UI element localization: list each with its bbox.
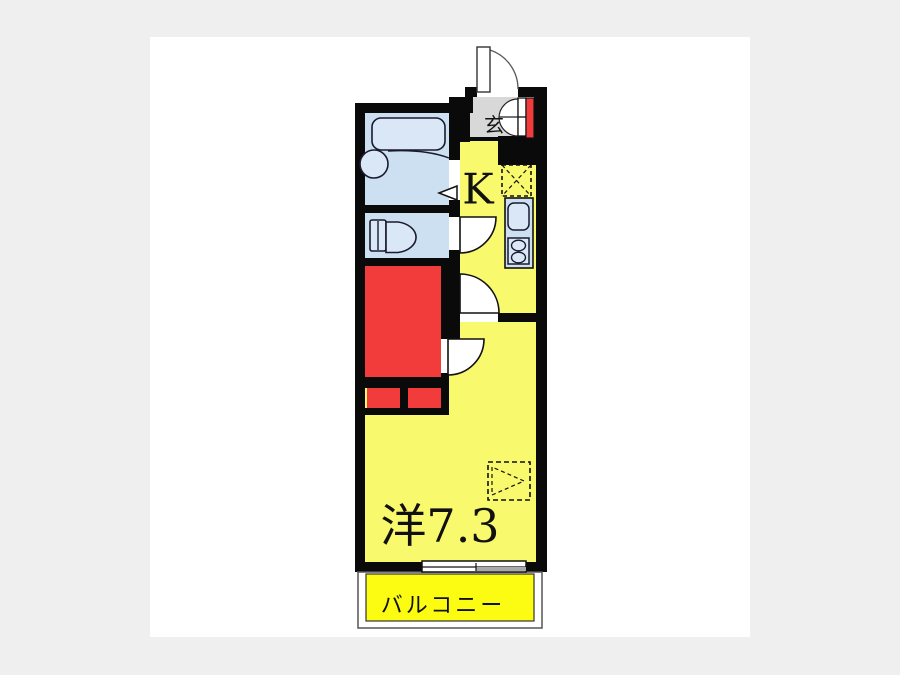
floorplan-canvas: 玄 K 洋7.3 バルコニー bbox=[150, 37, 750, 637]
entry-door-swing bbox=[490, 50, 518, 89]
screenshot-root: 玄 K 洋7.3 バルコニー bbox=[0, 0, 900, 675]
bathtub bbox=[372, 118, 445, 150]
sliding-window-panel bbox=[476, 567, 526, 571]
shoe-cabinet-side bbox=[526, 98, 534, 138]
wall-segment bbox=[365, 377, 449, 388]
wall-segment bbox=[498, 136, 536, 165]
room-door-opening bbox=[460, 313, 498, 322]
toilet-door-opening bbox=[449, 217, 460, 250]
floorplan-image: 玄 K 洋7.3 バルコニー bbox=[150, 37, 750, 637]
washbasin bbox=[360, 150, 388, 178]
closet-area bbox=[365, 266, 441, 377]
western-room-label: 洋7.3 bbox=[380, 499, 499, 553]
wall-segment bbox=[355, 205, 460, 213]
wall-segment bbox=[355, 258, 460, 266]
wall-segment bbox=[400, 388, 408, 408]
entry-door-leaf bbox=[477, 47, 490, 92]
closet-lower-right bbox=[408, 388, 441, 408]
kitchen-sink bbox=[508, 203, 529, 230]
wall-segment bbox=[536, 87, 547, 572]
balcony-label: バルコニー bbox=[381, 594, 506, 619]
closet-lower-left bbox=[367, 388, 400, 408]
window bbox=[422, 561, 526, 572]
entrance-label: 玄 bbox=[484, 113, 504, 137]
kitchen-label: K bbox=[462, 165, 495, 214]
wall-segment bbox=[355, 408, 449, 415]
